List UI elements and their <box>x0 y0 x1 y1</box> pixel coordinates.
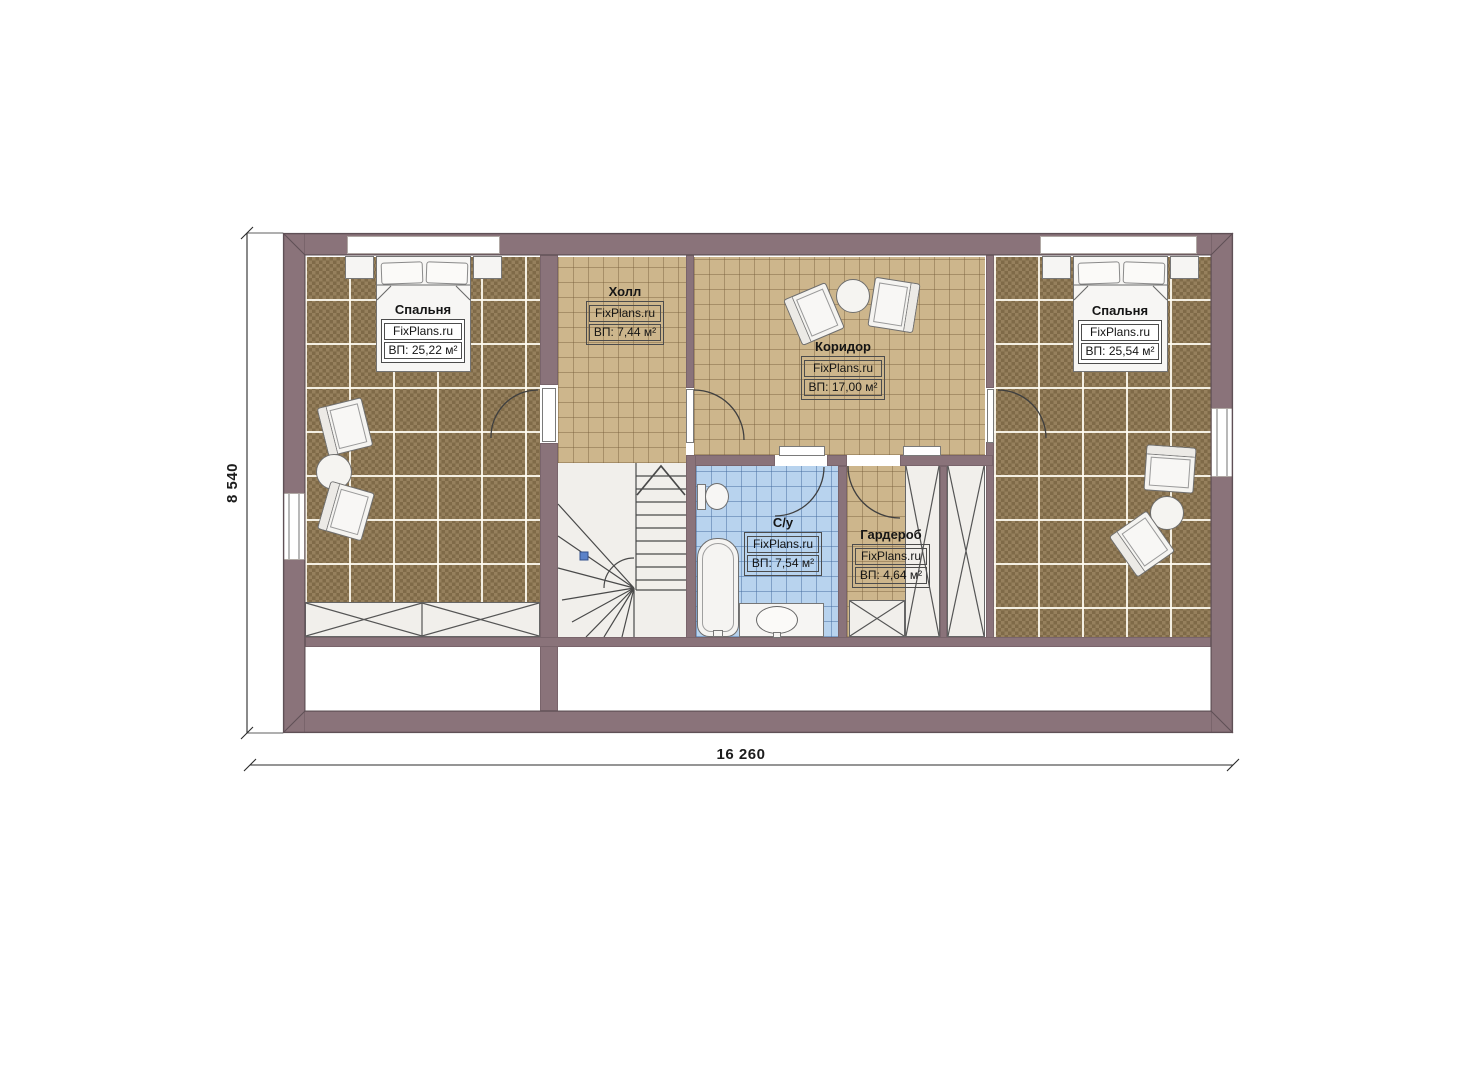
room-area: ВП: 17,00 м² <box>804 379 883 396</box>
room-label-bathroom: С/у FixPlans.ru ВП: 7,54 м² <box>723 515 843 576</box>
room-area: ВП: 7,44 м² <box>589 324 661 341</box>
toilet-icon <box>705 483 729 510</box>
pillow <box>381 261 424 284</box>
door-leaf-bedroom-left <box>542 388 556 442</box>
outer-wall-left <box>283 233 305 733</box>
watermark: FixPlans.ru <box>1081 324 1160 341</box>
chair-back <box>1147 445 1196 457</box>
dimension-height: 8 540 <box>224 455 242 511</box>
chair-seat <box>873 282 908 326</box>
watermark: FixPlans.ru <box>384 323 463 340</box>
bedroom-left-closet-strip <box>305 602 540 637</box>
wall-corridor-bedroomR-lower <box>986 442 994 645</box>
pillow <box>1123 261 1166 284</box>
wall-corridor-bottom-b <box>827 455 847 466</box>
wardrobe-niche-2 <box>947 465 985 637</box>
armchair <box>867 277 920 334</box>
wall-corridor-bottom-c <box>900 455 993 466</box>
room-name: Коридор <box>815 339 871 354</box>
floor-plan-page: Спальня FixPlans.ru ВП: 25,22 м² Холл Fi… <box>0 0 1474 1080</box>
sink-icon <box>756 606 798 634</box>
window-top-right <box>1040 236 1197 254</box>
nightstand <box>1170 256 1199 279</box>
room-name: Холл <box>609 284 642 299</box>
round-table <box>836 279 870 313</box>
door-leaf-bedroom-right <box>987 389 994 443</box>
chair-seat <box>1149 457 1191 489</box>
sink-tap <box>773 632 781 638</box>
room-label-corridor: Коридор FixPlans.ru ВП: 17,00 м² <box>783 339 903 400</box>
door-opening-wardrobe <box>847 455 900 466</box>
wardrobe-closet-box <box>849 600 905 637</box>
room-info-box: FixPlans.ru ВП: 25,54 м² <box>1078 320 1163 364</box>
room-info-box: FixPlans.ru ВП: 7,54 м² <box>744 532 822 576</box>
wall-bedroomL-hall-lower <box>540 443 558 711</box>
room-info-box: FixPlans.ru ВП: 17,00 м² <box>801 356 886 400</box>
watermark: FixPlans.ru <box>589 305 661 322</box>
door-leaf-bathroom <box>779 446 825 456</box>
window-left <box>283 493 305 560</box>
stair-zone-floor <box>558 463 686 637</box>
bathtub-drain <box>713 630 723 637</box>
room-info-box: FixPlans.ru ВП: 7,44 м² <box>586 301 664 345</box>
watermark: FixPlans.ru <box>747 536 819 553</box>
room-info-box: FixPlans.ru ВП: 4,64 м² <box>852 544 930 588</box>
room-name: С/у <box>773 515 793 530</box>
room-name: Спальня <box>395 302 451 317</box>
pillow <box>1078 261 1121 284</box>
room-label-bedroom-left: Спальня FixPlans.ru ВП: 25,22 м² <box>363 302 483 363</box>
outer-wall-bottom <box>283 711 1233 733</box>
room-label-bedroom-right: Спальня FixPlans.ru ВП: 25,54 м² <box>1060 303 1180 364</box>
window-right <box>1211 408 1233 477</box>
wall-bedroomL-hall-upper <box>540 255 558 385</box>
watermark: FixPlans.ru <box>804 360 883 377</box>
door-leaf-wardrobe <box>903 446 941 456</box>
wall-corridor-bottom-a <box>694 455 775 466</box>
room-info-box: FixPlans.ru ВП: 25,22 м² <box>381 319 466 363</box>
nightstand <box>1042 256 1071 279</box>
armchair <box>1143 444 1196 493</box>
nightstand <box>473 256 502 279</box>
room-label-wardrobe: Гардероб FixPlans.ru ВП: 4,64 м² <box>831 527 951 588</box>
room-area: ВП: 4,64 м² <box>855 567 927 584</box>
wall-stairs-bathroom <box>686 455 696 645</box>
wall-hall-corridor <box>686 255 694 388</box>
window-top-left <box>347 236 500 254</box>
door-leaf-hall-corridor <box>686 389 694 443</box>
room-label-hall: Холл FixPlans.ru ВП: 7,44 м² <box>565 284 685 345</box>
nightstand <box>345 256 374 279</box>
interior-wall-bottom <box>305 637 1211 647</box>
room-area: ВП: 25,22 м² <box>384 342 463 359</box>
watermark: FixPlans.ru <box>855 548 927 565</box>
room-name: Спальня <box>1092 303 1148 318</box>
door-opening-bathroom <box>775 455 827 466</box>
room-name: Гардероб <box>860 527 921 542</box>
room-area: ВП: 25,54 м² <box>1081 343 1160 360</box>
dimension-width: 16 260 <box>699 746 783 763</box>
room-area: ВП: 7,54 м² <box>747 555 819 572</box>
outer-wall-right <box>1211 233 1233 733</box>
pillow <box>426 261 469 284</box>
wall-corridor-bedroomR-upper <box>986 255 994 388</box>
